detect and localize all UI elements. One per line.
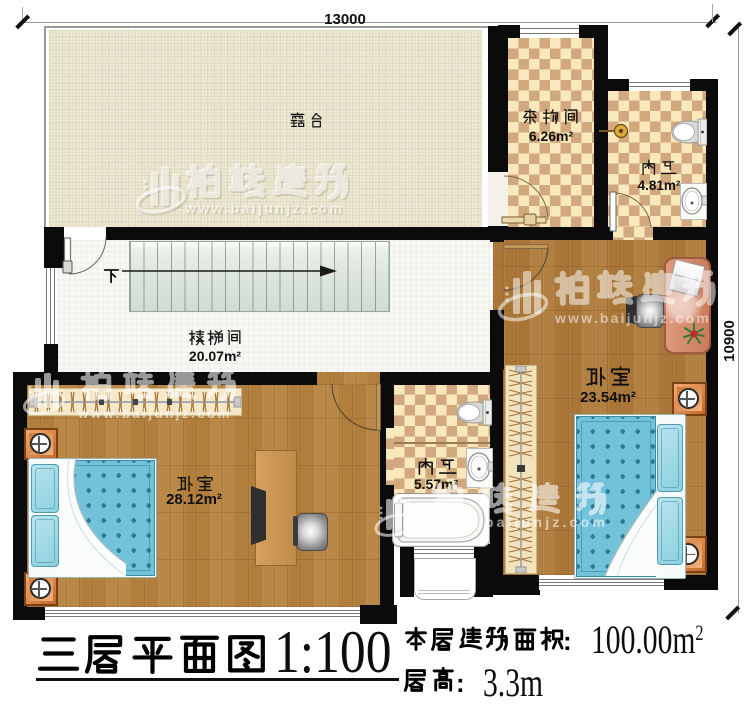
svg-text:10900: 10900 — [721, 320, 738, 362]
